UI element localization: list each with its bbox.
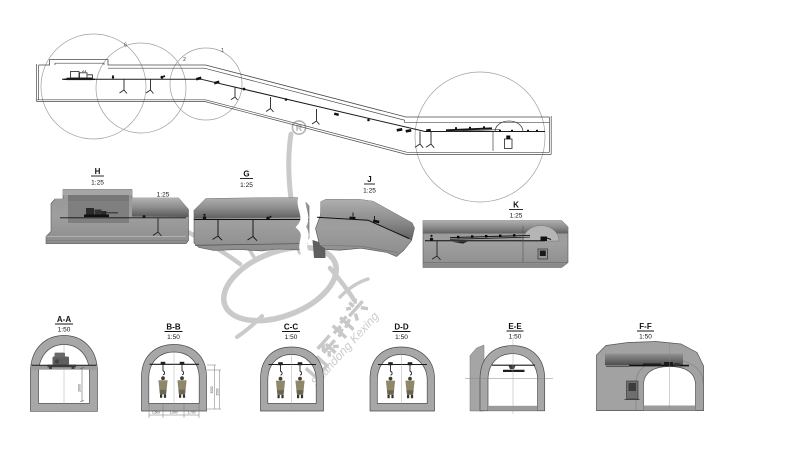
svg-text:1:25: 1:25 bbox=[91, 180, 104, 187]
svg-text:1: 1 bbox=[221, 48, 224, 54]
svg-text:J: J bbox=[367, 175, 371, 184]
svg-text:G: G bbox=[243, 170, 249, 179]
svg-text:A-A: A-A bbox=[57, 315, 71, 324]
svg-text:1:25: 1:25 bbox=[157, 192, 170, 199]
svg-text:1:50: 1:50 bbox=[167, 334, 180, 341]
svg-text:1,000: 1,000 bbox=[170, 411, 178, 415]
svg-text:2000: 2000 bbox=[78, 384, 82, 392]
svg-text:K: K bbox=[513, 201, 519, 210]
svg-text:H: H bbox=[95, 167, 101, 176]
svg-text:1:50: 1:50 bbox=[58, 327, 71, 334]
svg-text:C-C: C-C bbox=[284, 323, 298, 332]
svg-text:1:50: 1:50 bbox=[285, 334, 298, 341]
svg-text:1:25: 1:25 bbox=[363, 188, 376, 195]
svg-text:E-E: E-E bbox=[508, 322, 522, 331]
svg-text:2500: 2500 bbox=[215, 388, 219, 395]
svg-text:1:25: 1:25 bbox=[240, 182, 253, 189]
svg-text:1:50: 1:50 bbox=[639, 334, 652, 341]
svg-text:1,700: 1,700 bbox=[188, 411, 196, 415]
svg-text:B-B: B-B bbox=[166, 323, 180, 332]
svg-text:D-D: D-D bbox=[394, 323, 408, 332]
svg-text:1,500: 1,500 bbox=[152, 411, 160, 415]
svg-text:1:25: 1:25 bbox=[510, 213, 523, 220]
svg-text:F-F: F-F bbox=[639, 322, 652, 331]
svg-text:3000: 3000 bbox=[210, 386, 214, 393]
svg-text:6: 6 bbox=[124, 43, 127, 49]
svg-text:1:50: 1:50 bbox=[395, 334, 408, 341]
svg-text:1:50: 1:50 bbox=[509, 334, 522, 341]
svg-text:2: 2 bbox=[183, 57, 186, 63]
